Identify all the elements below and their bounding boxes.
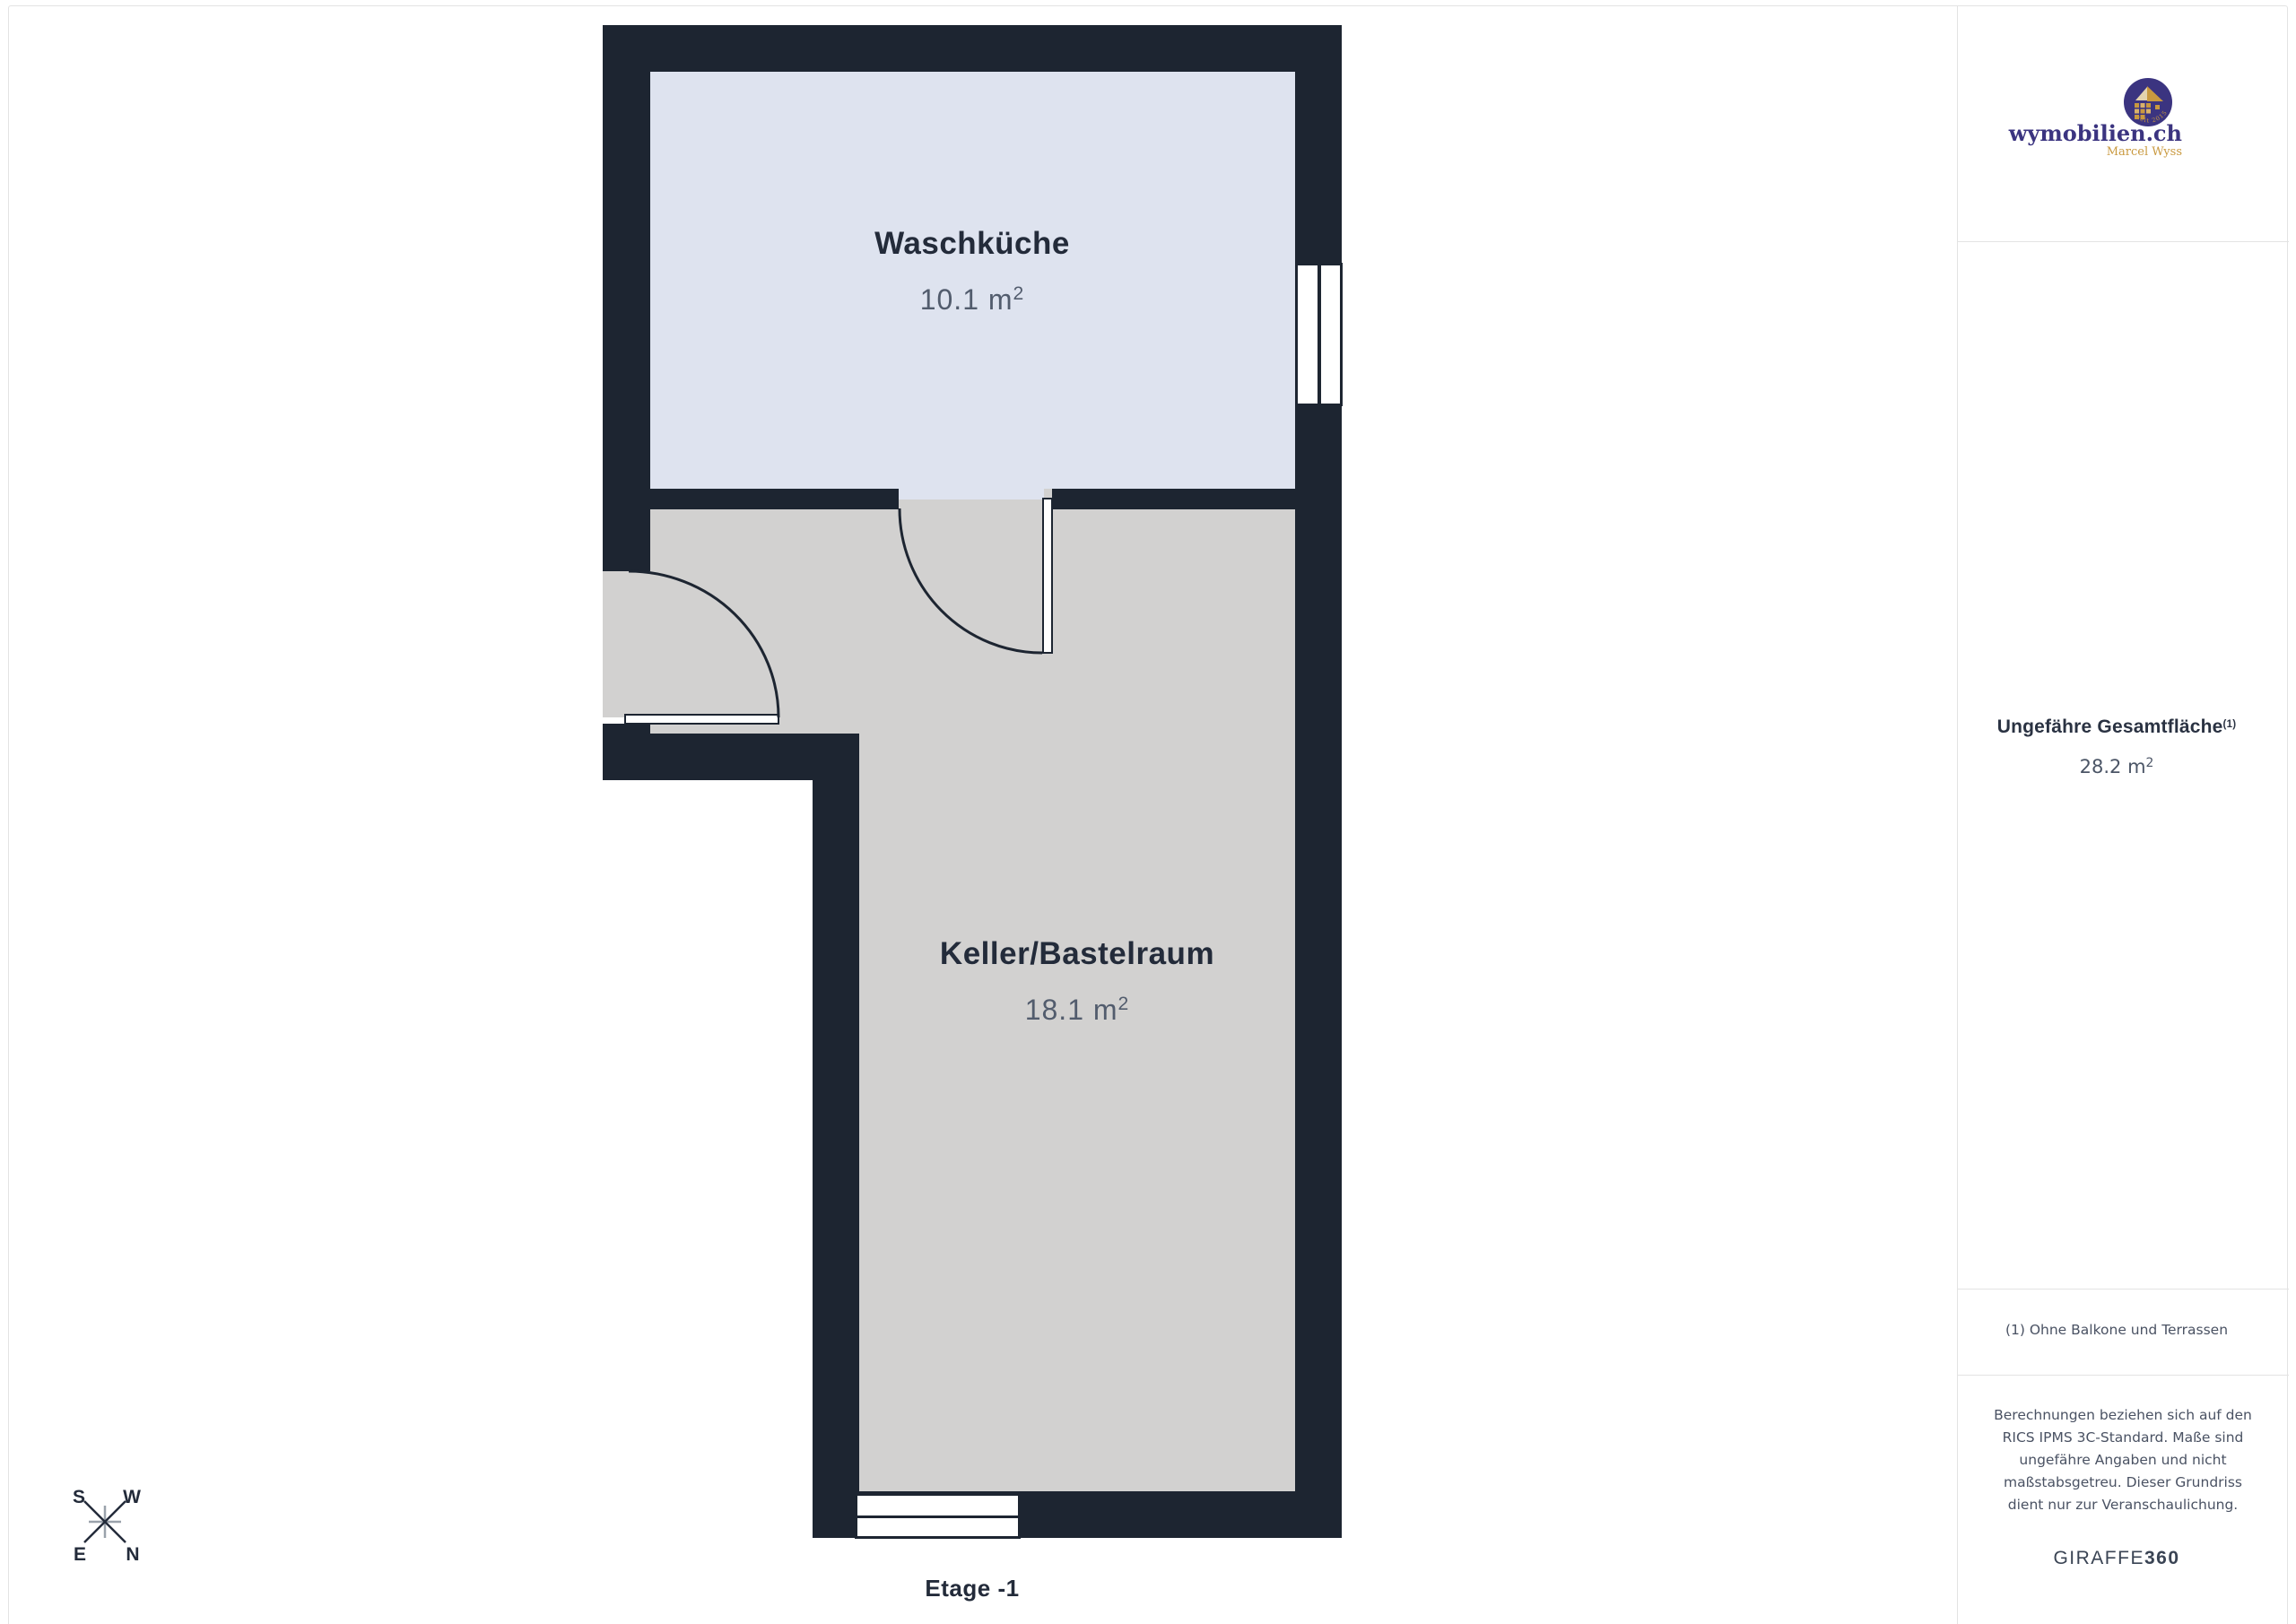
entrance-door-opening <box>603 571 650 717</box>
wall-top <box>603 25 1342 72</box>
window-bottom-icon <box>855 1493 1021 1539</box>
room-area-value: 10.1 <box>920 283 979 316</box>
room-area-unit: m <box>1093 994 1118 1026</box>
interior-door-leaf <box>1042 498 1053 654</box>
total-area-label: Ungefähre Gesamtfläche(1) <box>1960 716 2274 738</box>
wall-left-upper <box>603 25 650 571</box>
sidebar-left-border <box>1957 5 1958 1624</box>
total-area-label-text: Ungefähre Gesamtfläche <box>1997 716 2223 737</box>
giraffe360-bold: 360 <box>2144 1548 2180 1568</box>
room-area-unit: m <box>988 283 1013 316</box>
total-area-footnote-ref: (1) <box>2223 719 2237 730</box>
floor-level-label: Etage -1 <box>793 1575 1152 1602</box>
window-right-icon <box>1295 263 1343 406</box>
room-area-value: 18.1 <box>1025 994 1084 1026</box>
room-label-waschkueche: Waschküche 10.1 m2 <box>658 226 1286 262</box>
room-name: Keller/Bastelraum <box>808 936 1346 972</box>
sidebar-divider-logo <box>1958 241 2289 242</box>
room-area: 18.1 m2 <box>808 992 1346 1028</box>
room-area-sup: 2 <box>1013 283 1025 304</box>
brand-subtitle: Marcel Wyss <box>2003 145 2182 159</box>
room-area: 10.1 m2 <box>658 282 1286 317</box>
giraffe360-plain: GIRAFFE <box>2053 1548 2144 1568</box>
wall-interior-left <box>650 489 899 509</box>
sidebar-divider-footnote-top <box>1958 1289 2289 1290</box>
room-floor-waschkueche <box>650 72 1295 489</box>
room-label-keller: Keller/Bastelraum 18.1 m2 <box>808 936 1346 972</box>
interior-door-threshold <box>899 489 1044 499</box>
total-area-unit-sup: 2 <box>2146 756 2154 770</box>
footnote-text: (1) Ohne Balkone und Terrassen <box>1960 1322 2274 1338</box>
total-area-number: 28.2 <box>2080 756 2122 777</box>
wall-left-lower <box>813 780 859 1538</box>
wall-interior-right <box>1052 489 1295 509</box>
disclaimer-text: Berechnungen beziehen sich auf den RICS … <box>1988 1404 2257 1516</box>
window-bottom-divider <box>857 1515 1018 1518</box>
window-right-divider <box>1318 265 1321 404</box>
sidebar-divider-footnote-bottom <box>1958 1375 2289 1376</box>
wall-left-stub <box>603 724 650 780</box>
room-floor-keller-lower <box>859 734 1295 1491</box>
room-name: Waschküche <box>658 226 1286 262</box>
giraffe360-logo: GIRAFFE360 <box>1960 1548 2274 1569</box>
wall-step-band <box>650 734 859 780</box>
total-area-value: 28.2 m2 <box>1960 756 2274 777</box>
room-floor-keller-upper <box>650 509 1295 734</box>
entrance-door-leaf <box>624 714 779 725</box>
floorplan-page: S W E N Waschküche 10.1 m2 Keller/Bastel… <box>0 0 2296 1624</box>
brand-name: wymobilien.ch <box>1913 120 2182 146</box>
room-area-sup: 2 <box>1118 994 1130 1014</box>
total-area-unit: m <box>2127 756 2145 777</box>
wall-right <box>1295 25 1342 1538</box>
